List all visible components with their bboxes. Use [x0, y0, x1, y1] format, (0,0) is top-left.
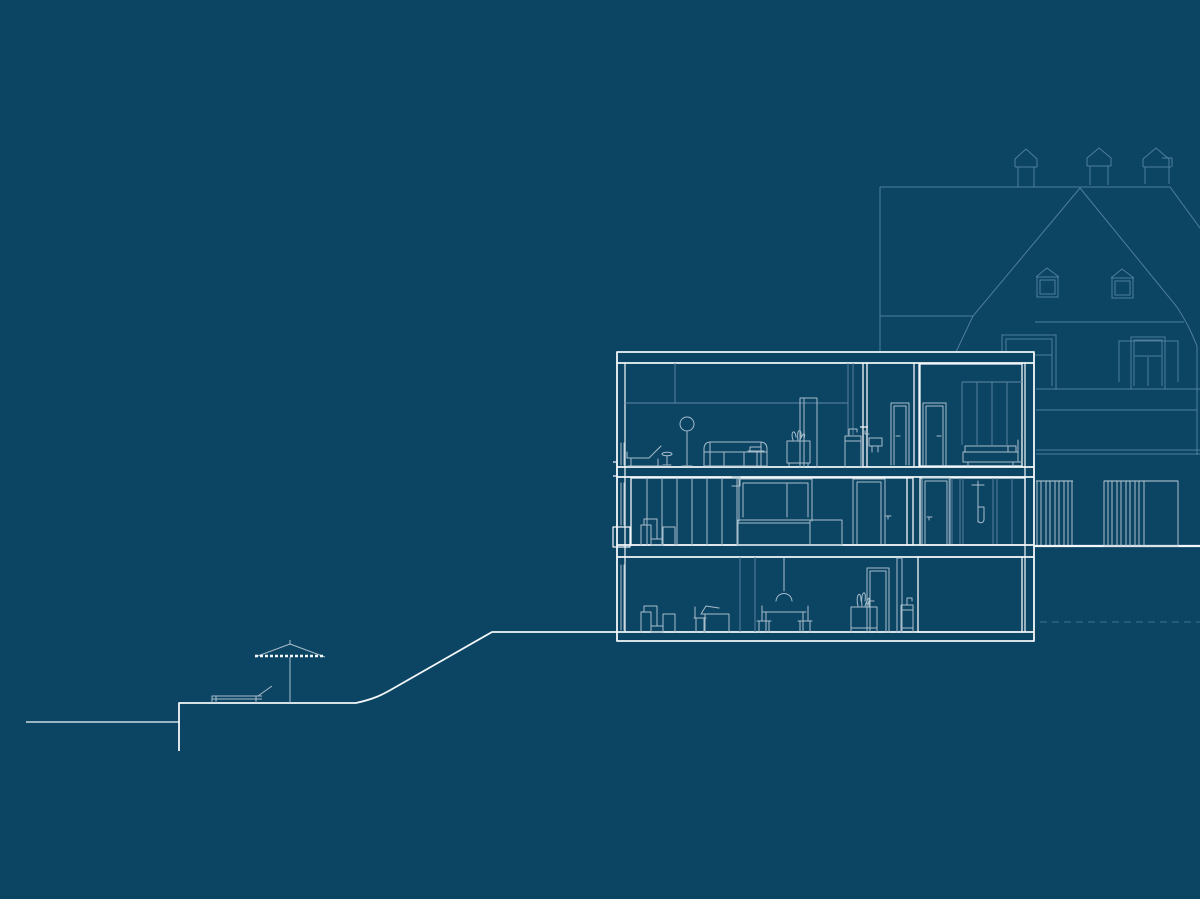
architectural-section-drawing — [0, 0, 1200, 899]
blueprint-canvas — [0, 0, 1200, 899]
section-backdrop — [617, 352, 1034, 641]
